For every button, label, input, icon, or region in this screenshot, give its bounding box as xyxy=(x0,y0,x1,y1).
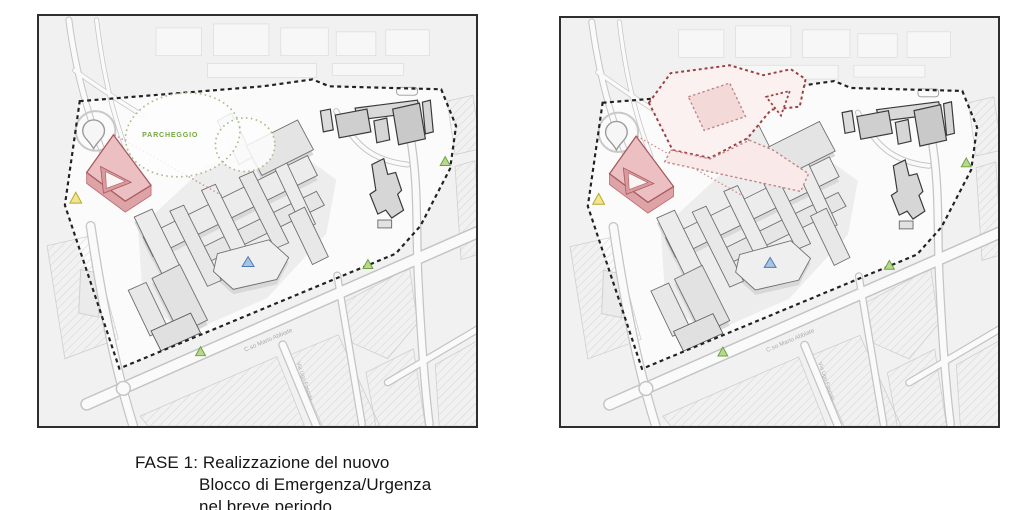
parking-label: PARCHEGGIO xyxy=(142,131,198,139)
fase2-map-panel: FASE 2: Costruzione del nuovo Ospedale g… xyxy=(559,16,1000,428)
basemap-instance xyxy=(39,16,476,426)
fase1-map: PARCHEGGIO xyxy=(39,16,476,426)
fase1-caption-text2: Blocco di Emergenza/Urgenza xyxy=(199,474,465,496)
phasing-diagram: C.so Mario Abbiate Via Ugo Foscolo PARCH… xyxy=(0,0,1024,510)
fase1-caption-prefix: FASE 1: xyxy=(135,453,198,472)
fase1-map-panel: PARCHEGGIO FASE 1: Realizzazione del nuo… xyxy=(37,14,478,428)
fase1-caption-text3: nel breve periodo xyxy=(199,496,465,510)
fase2-map xyxy=(561,18,998,426)
fase1-caption: FASE 1: Realizzazione del nuovo Blocco d… xyxy=(135,452,465,510)
fase1-caption-text1: Realizzazione del nuovo xyxy=(203,453,390,472)
